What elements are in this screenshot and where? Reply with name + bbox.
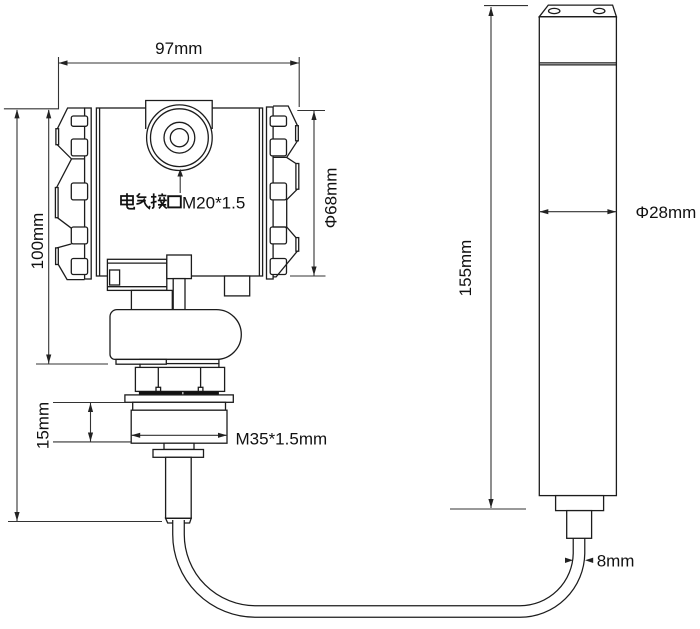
svg-text:155mm: 155mm [456, 240, 475, 297]
svg-text:15mm: 15mm [33, 402, 52, 449]
svg-text:8mm: 8mm [597, 552, 635, 571]
svg-text:Φ68mm: Φ68mm [321, 168, 340, 229]
svg-text:100mm: 100mm [28, 213, 47, 270]
svg-text:Φ28mm: Φ28mm [636, 203, 697, 222]
svg-text:M35*1.5mm: M35*1.5mm [236, 430, 328, 449]
svg-text:97mm: 97mm [155, 39, 202, 58]
svg-text:M20*1.5: M20*1.5 [182, 193, 245, 212]
